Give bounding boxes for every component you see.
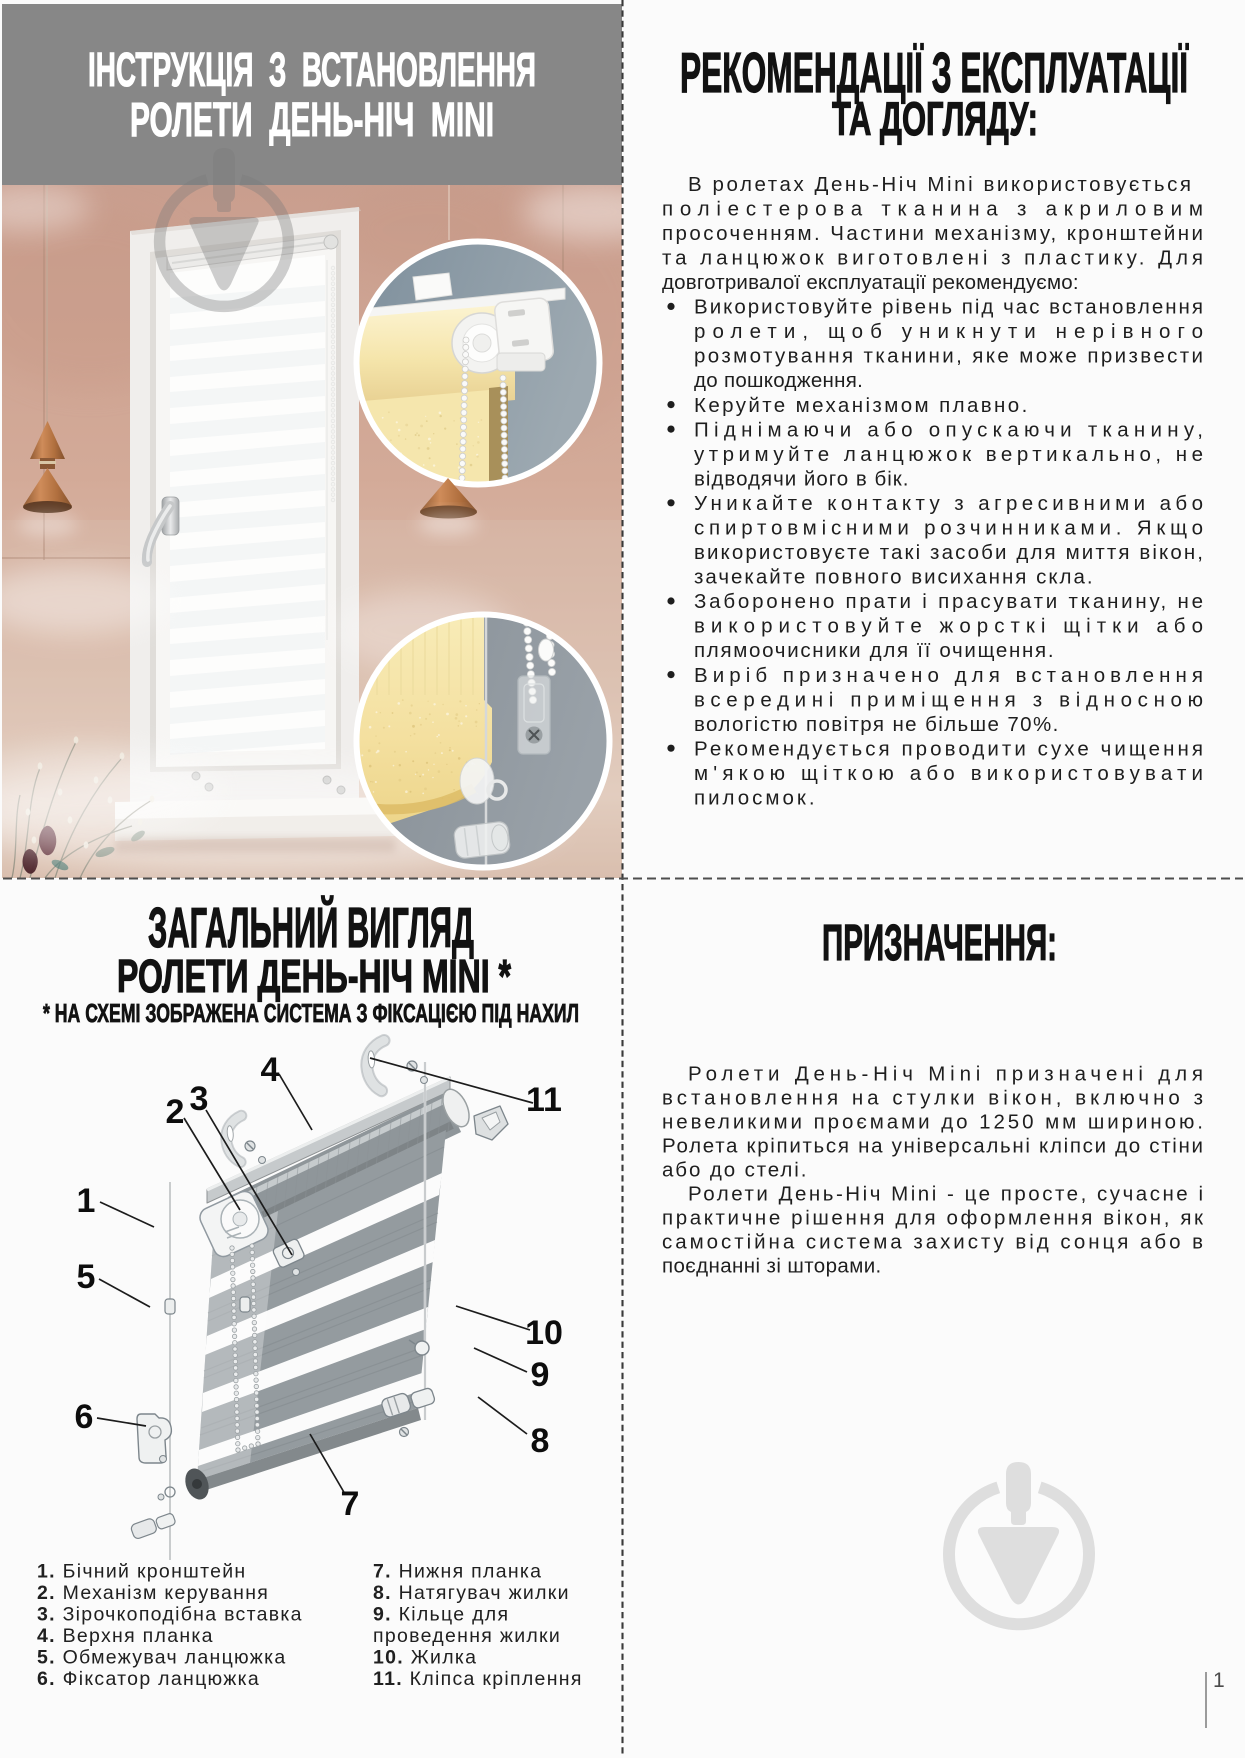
svg-text:поєднанні зі шторами.: поєднанні зі шторами. [662,1255,882,1278]
svg-text:спиртовмісними розчинниками. Я: спиртовмісними розчинниками. Якщо [694,517,1203,540]
svg-text:9. Кільце для: 9. Кільце для [373,1604,509,1626]
svg-text:відводячи його в бік.: відводячи його в бік. [694,467,909,490]
svg-text:5: 5 [77,1258,96,1296]
svg-text:10: 10 [525,1314,563,1352]
svg-text:6. Фіксатор ланцюжка: 6. Фіксатор ланцюжка [37,1668,260,1690]
svg-text:проведення жилки: проведення жилки [373,1625,561,1647]
svg-text:Піднімаючи або опускаючи ткани: Піднімаючи або опускаючи тканину, [694,418,1203,441]
svg-text:ІНСТРУКЦІЯ З ВСТАНОВЛЕННЯ: ІНСТРУКЦІЯ З ВСТАНОВЛЕННЯ [88,44,536,97]
svg-text:ПРИЗНАЧЕННЯ:: ПРИЗНАЧЕННЯ: [822,914,1057,971]
svg-text:до пошкодження.: до пошкодження. [694,369,863,392]
svg-text:6: 6 [75,1398,94,1436]
svg-text:* НА СХЕМІ ЗОБРАЖЕНА СИСТЕМА З: * НА СХЕМІ ЗОБРАЖЕНА СИСТЕМА З ФІКСАЦІЄЮ… [43,998,579,1028]
svg-text:7: 7 [341,1485,360,1523]
svg-text:самостійна система захисту від: самостійна система захисту від сонця або… [662,1231,1203,1254]
svg-text:ТА ДОГЛЯДУ:: ТА ДОГЛЯДУ: [832,92,1038,145]
svg-text:3: 3 [190,1080,209,1118]
svg-text:зачекайте повного висихання ск: зачекайте повного висихання скла. [694,566,1095,589]
svg-text:1: 1 [77,1182,96,1220]
svg-text:В ролетах День-Ніч Mini викори: В ролетах День-Ніч Mini використовується [688,173,1191,196]
svg-text:7. Нижня планка: 7. Нижня планка [373,1561,542,1583]
svg-text:Використовуйте рівень під час: Використовуйте рівень під час встановлен… [694,296,1203,319]
svg-text:5. Обмежувач ланцюжка: 5. Обмежувач ланцюжка [37,1647,287,1669]
svg-text:або до стелі.: або до стелі. [662,1159,808,1182]
svg-text:11. Кліпса кріплення: 11. Кліпса кріплення [373,1668,583,1690]
svg-text:пилосмок.: пилосмок. [694,787,818,810]
svg-text:4. Верхня планка: 4. Верхня планка [37,1625,214,1647]
svg-text:10. Жилка: 10. Жилка [373,1647,477,1669]
svg-text:11: 11 [526,1081,562,1119]
svg-text:Ролета кріпиться на універсаль: Ролета кріпиться на універсальні кліпси … [662,1135,1203,1158]
svg-text:2: 2 [166,1093,185,1131]
svg-text:плямоочисники для її очищення.: плямоочисники для її очищення. [694,639,1055,662]
svg-text:РОЛЕТИ ДЕНЬ-НІЧ MINI: РОЛЕТИ ДЕНЬ-НІЧ MINI [130,94,494,147]
svg-text:1: 1 [1213,1669,1225,1692]
svg-text:4: 4 [261,1051,280,1089]
svg-text:8: 8 [531,1422,550,1460]
svg-text:використовуєте такі засоби для: використовуєте такі засоби для миття вік… [694,541,1203,564]
svg-text:невеликими проємами до 1250 мм: невеликими проємами до 1250 мм шириною. [662,1111,1203,1134]
svg-text:Заборонено прати і прасувати т: Заборонено прати і прасувати тканину, не [694,590,1203,613]
svg-text:2. Механізм керування: 2. Механізм керування [37,1582,269,1604]
svg-text:ролети, щоб уникнути нерівного: ролети, щоб уникнути нерівного [694,320,1203,343]
svg-text:8. Натягувач жилки: 8. Натягувач жилки [373,1582,570,1604]
svg-text:Керуйте механізмом плавно.: Керуйте механізмом плавно. [694,394,1030,417]
svg-text:1. Бічний кронштейн: 1. Бічний кронштейн [37,1561,247,1583]
svg-text:3. Зірочкоподібна вставка: 3. Зірочкоподібна вставка [37,1604,303,1626]
svg-text:9: 9 [531,1356,550,1394]
svg-text:вологістю повітря не більше 70: вологістю повітря не більше 70%. [694,713,1060,736]
svg-text:використовуйте жорсткі щітки а: використовуйте жорсткі щітки або [694,615,1203,638]
svg-text:довготривалої експлуатації рек: довготривалої експлуатації рекомендуємо: [662,271,1079,294]
svg-text:РОЛЕТИ ДЕНЬ-НІЧ MINI *: РОЛЕТИ ДЕНЬ-НІЧ MINI * [117,950,511,1002]
